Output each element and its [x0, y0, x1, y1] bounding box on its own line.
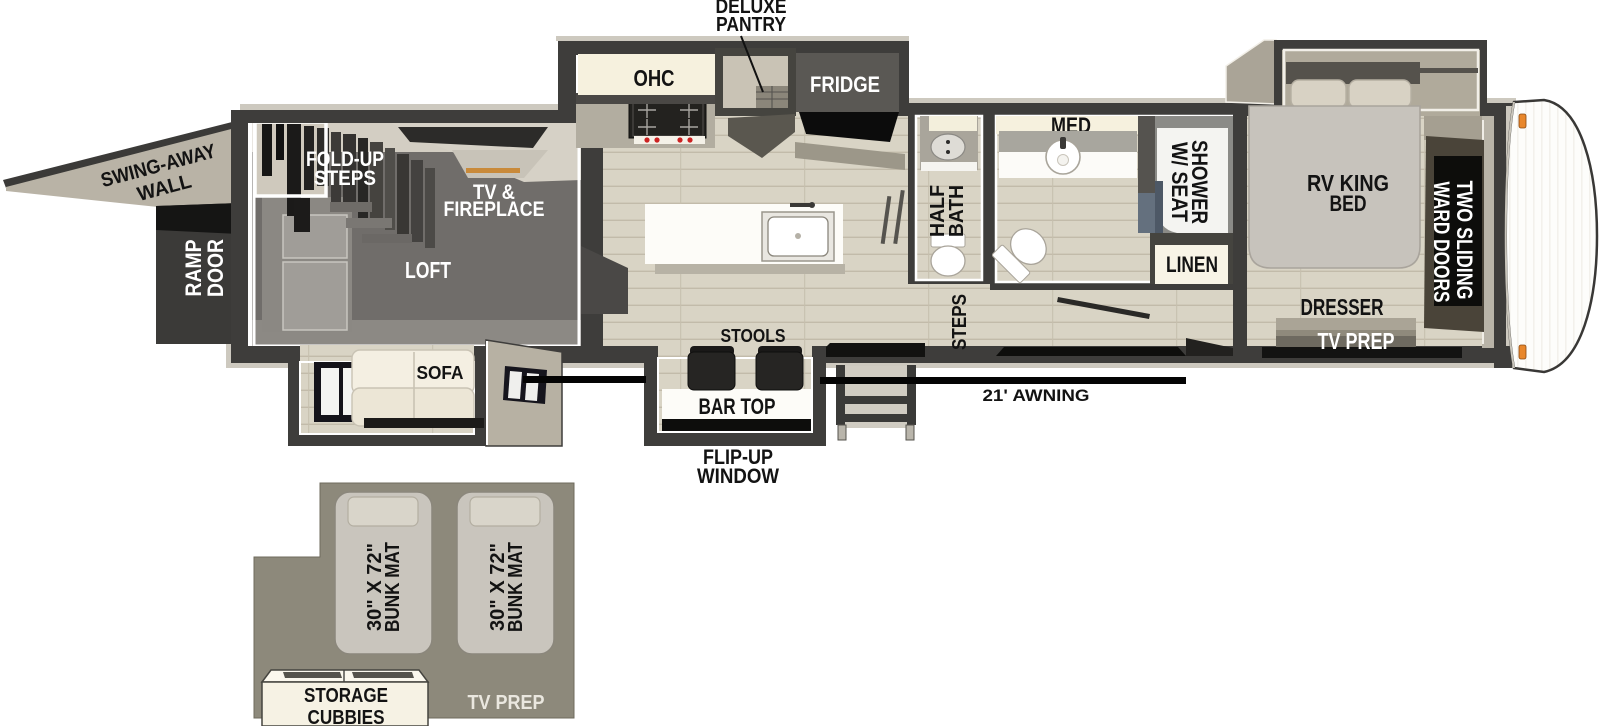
svg-text:STEPS: STEPS — [949, 294, 971, 350]
svg-text:STORAGE: STORAGE — [304, 685, 388, 707]
svg-text:STEPS: STEPS — [314, 167, 376, 190]
svg-text:OHC: OHC — [634, 65, 675, 91]
svg-text:LOFT: LOFT — [405, 257, 451, 283]
svg-text:BUNK MAT: BUNK MAT — [382, 542, 404, 632]
svg-text:TV PREP: TV PREP — [468, 692, 545, 714]
svg-text:BUNK MAT: BUNK MAT — [505, 542, 527, 632]
svg-text:WARD DOORS: WARD DOORS — [1429, 182, 1454, 303]
svg-text:WINDOW: WINDOW — [697, 465, 779, 488]
svg-text:CUBBIES: CUBBIES — [308, 707, 385, 726]
svg-text:DOOR: DOOR — [203, 239, 228, 297]
svg-text:BATH: BATH — [946, 185, 968, 237]
svg-text:BAR TOP: BAR TOP — [699, 394, 776, 419]
svg-text:FRIDGE: FRIDGE — [810, 72, 880, 97]
svg-text:TV PREP: TV PREP — [1318, 328, 1395, 354]
svg-text:PANTRY: PANTRY — [716, 14, 787, 36]
svg-text:BED: BED — [1330, 191, 1367, 216]
svg-text:SOFA: SOFA — [417, 363, 464, 383]
svg-text:TWO SLIDING: TWO SLIDING — [1452, 181, 1477, 300]
svg-text:FIREPLACE: FIREPLACE — [444, 198, 545, 221]
svg-text:LINEN: LINEN — [1166, 252, 1218, 277]
svg-text:STOOLS: STOOLS — [721, 326, 786, 346]
svg-text:W/ SEAT: W/ SEAT — [1167, 142, 1192, 222]
svg-text:DRESSER: DRESSER — [1301, 294, 1384, 320]
svg-text:21' AWNING: 21' AWNING — [983, 386, 1090, 405]
